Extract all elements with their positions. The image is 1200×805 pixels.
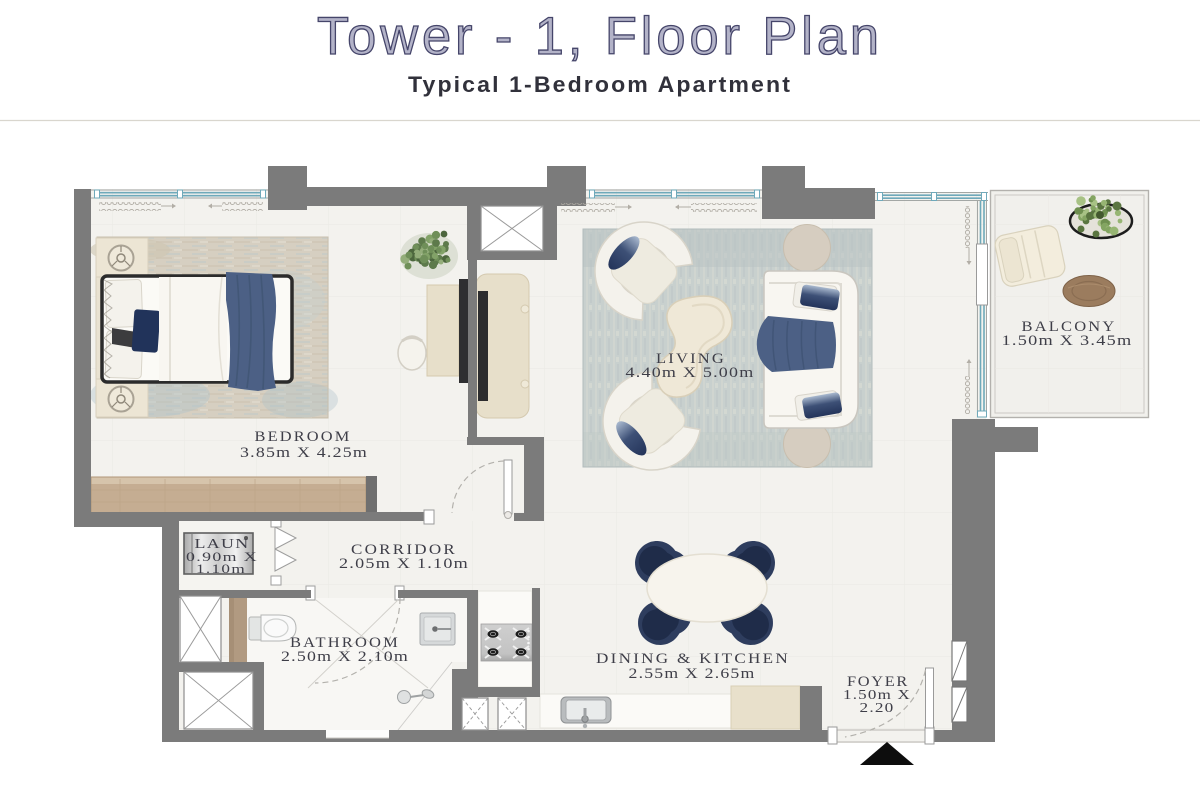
- svg-text:2.55m X 2.65m: 2.55m X 2.65m: [629, 666, 756, 682]
- svg-text:4.40m X 5.00m: 4.40m X 5.00m: [626, 365, 755, 381]
- svg-text:2.20: 2.20: [860, 701, 895, 716]
- svg-text:Typical 1-Bedroom Apartment: Typical 1-Bedroom Apartment: [408, 72, 792, 97]
- svg-text:DINING & KITCHEN: DINING & KITCHEN: [596, 651, 790, 667]
- svg-text:1.50m X 3.45m: 1.50m X 3.45m: [1002, 333, 1133, 349]
- svg-text:1.10m: 1.10m: [196, 561, 246, 576]
- svg-text:3.85m X 4.25m: 3.85m X 4.25m: [240, 445, 368, 461]
- svg-text:2.50m X 2.10m: 2.50m X 2.10m: [281, 649, 409, 665]
- svg-text:BEDROOM: BEDROOM: [255, 429, 352, 445]
- svg-text:Tower - 1, Floor Plan: Tower - 1, Floor Plan: [317, 7, 883, 66]
- svg-text:2.05m X 1.10m: 2.05m X 1.10m: [339, 556, 469, 572]
